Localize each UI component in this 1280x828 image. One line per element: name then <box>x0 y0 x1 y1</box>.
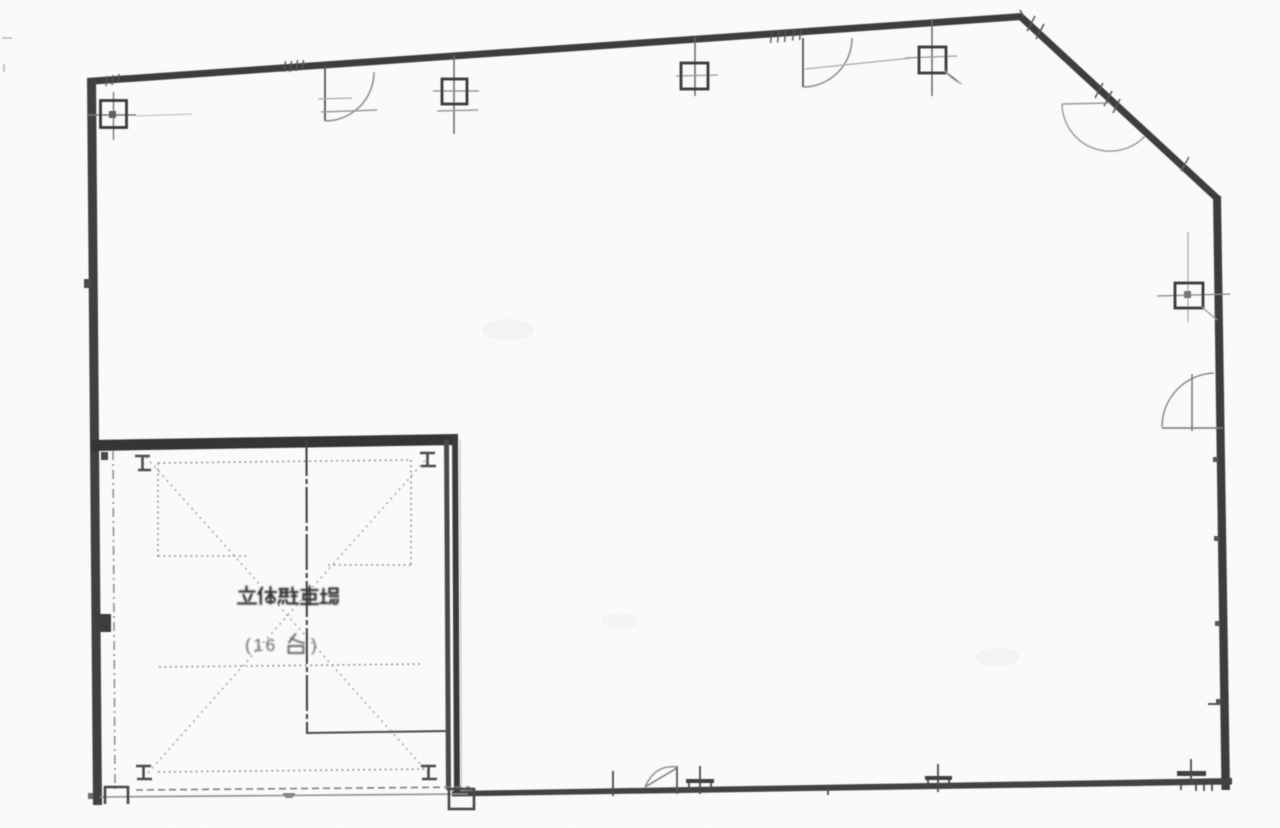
svg-text:(16: (16 <box>245 635 278 655</box>
svg-text:): ) <box>311 635 317 655</box>
